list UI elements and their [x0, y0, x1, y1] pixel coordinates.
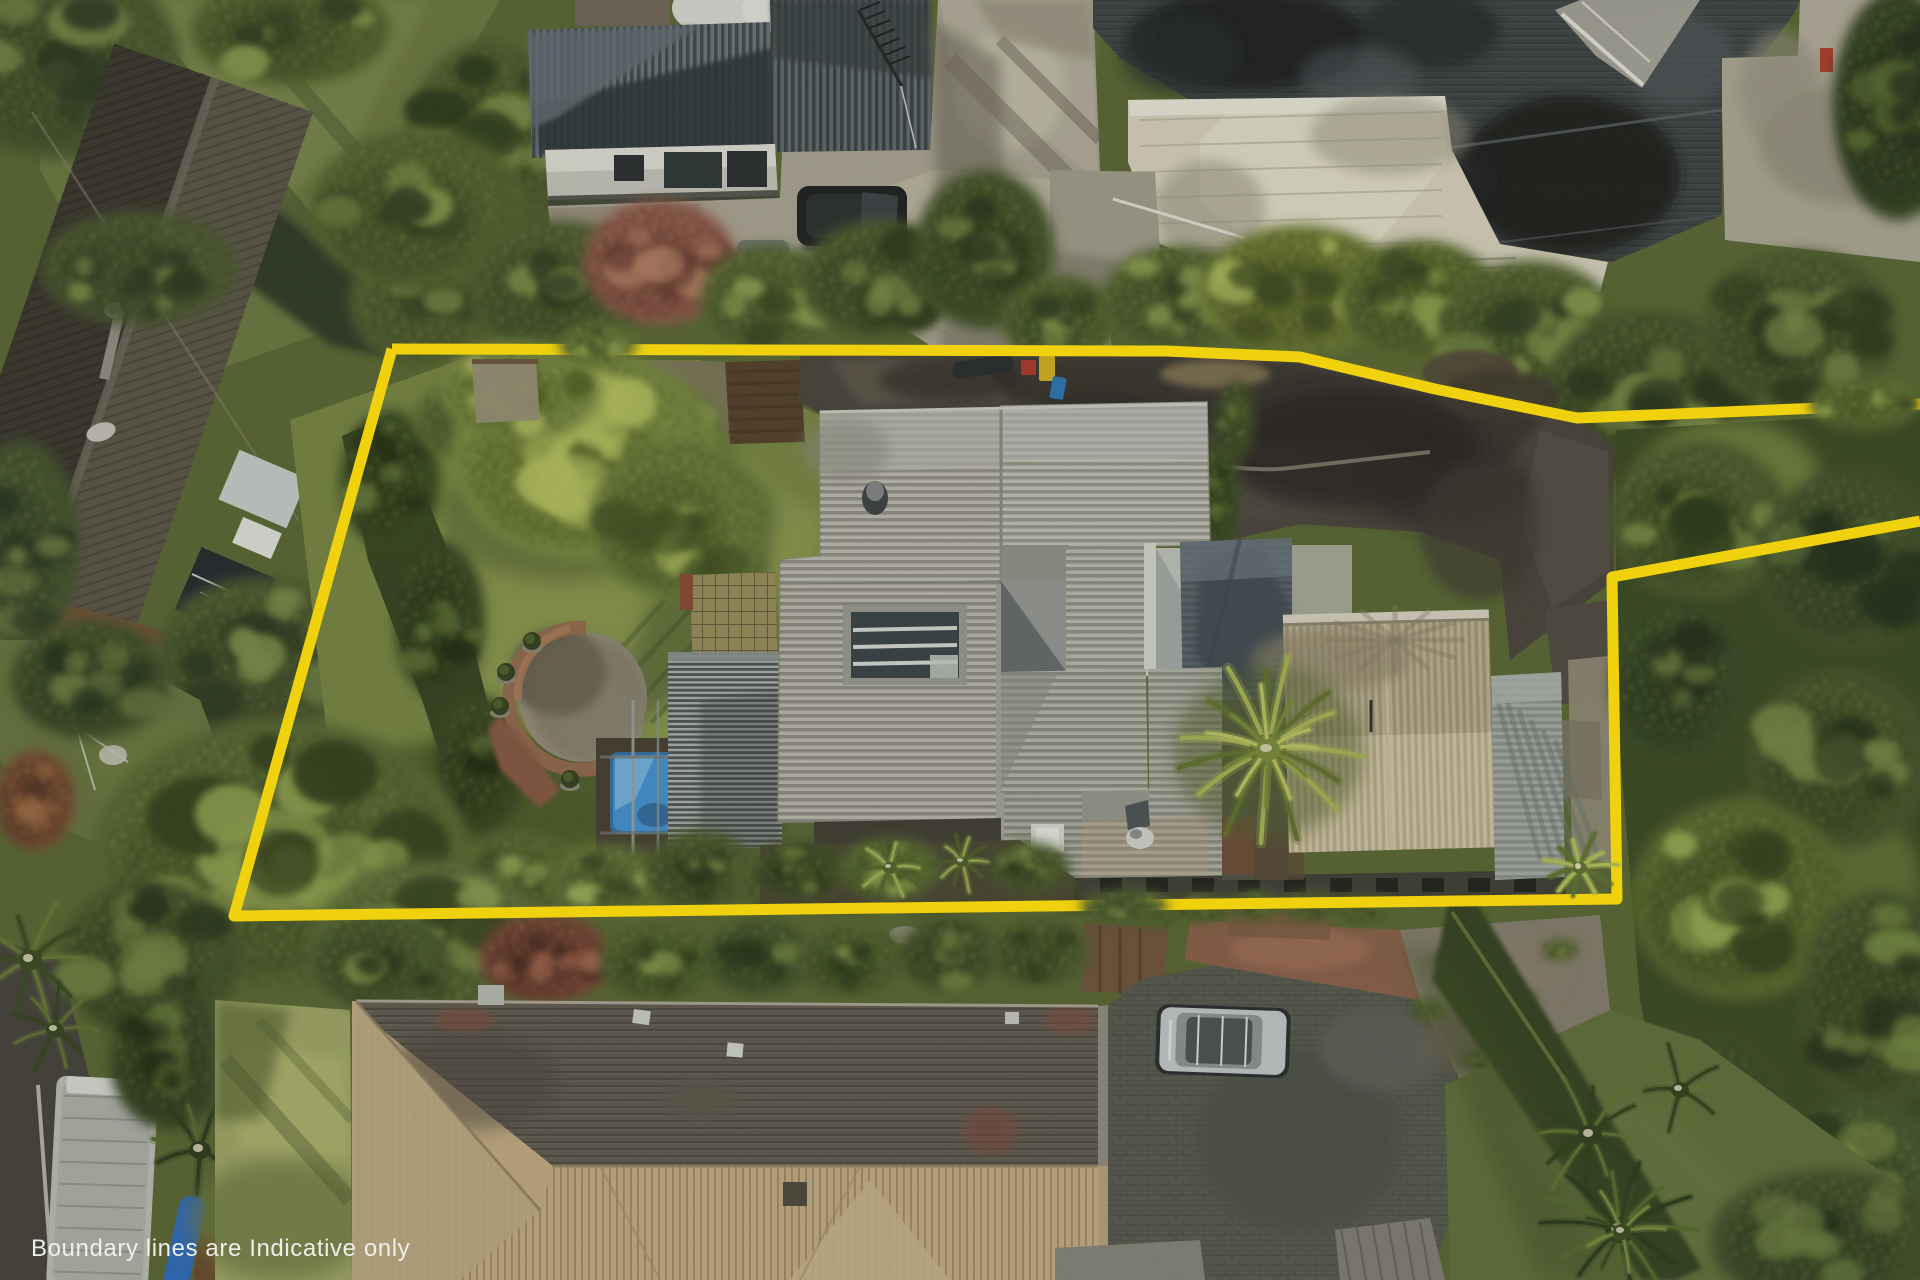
svg-text:Boundary lines are Indicative: Boundary lines are Indicative only — [31, 1235, 410, 1262]
